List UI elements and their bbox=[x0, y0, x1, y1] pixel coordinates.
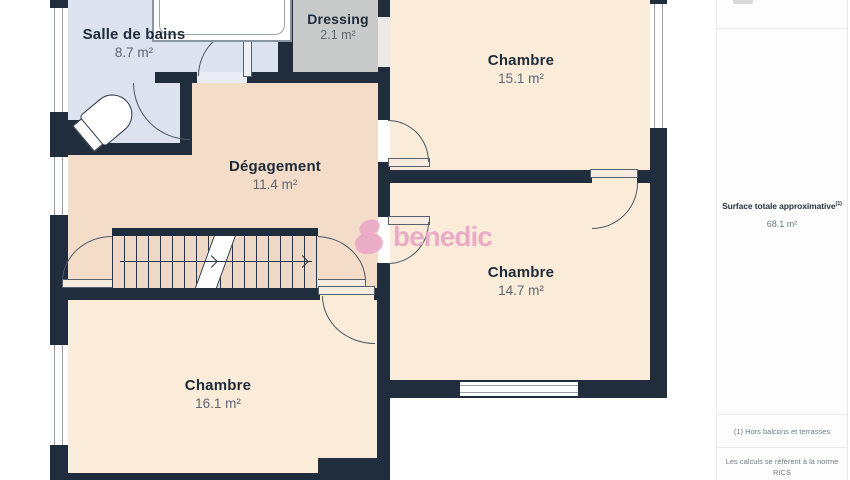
surface-total-value: 68.1 m² bbox=[717, 219, 847, 229]
sidebar-footnote-2-line1: Les calculs se réfèrent à la norme RICS bbox=[721, 456, 843, 478]
room-label-salle-de-bains: Salle de bains 8.7 m² bbox=[83, 26, 186, 62]
room-label-dressing: Dressing 2.1 m² bbox=[307, 11, 369, 43]
wall-bathroom2-bottom bbox=[50, 143, 192, 155]
wall-bottom-left bbox=[50, 473, 320, 480]
room-name: Chambre bbox=[488, 264, 554, 282]
staircase bbox=[112, 236, 318, 288]
room-name: Salle de bains bbox=[83, 26, 186, 44]
surface-total-block: Surface totale approximative(1) 68.1 m² bbox=[717, 201, 847, 229]
room-name: Chambre bbox=[488, 52, 554, 70]
room-name: Dressing bbox=[307, 11, 369, 27]
window-right-1 bbox=[650, 4, 667, 128]
room-label-chambre-2: Chambre 14.7 m² bbox=[488, 264, 554, 300]
sidebar-footnote-1: (1) Hors balcons et terrasses bbox=[721, 426, 843, 437]
sidebar-divider bbox=[717, 28, 847, 29]
wall-divider-seg-2 bbox=[378, 67, 390, 120]
surface-total-text: Surface totale approximative bbox=[722, 201, 835, 211]
door-leaf-bedroom-3 bbox=[318, 286, 375, 295]
watermark-text: benedic bbox=[393, 222, 492, 252]
room-area: 8.7 m² bbox=[83, 44, 186, 62]
room-area: 16.1 m² bbox=[185, 395, 251, 413]
surface-note-ref: (1) bbox=[835, 201, 841, 207]
floorplan-page: benedic Salle de bains 8.7 m² Dressing 2… bbox=[0, 0, 850, 480]
room-area: 15.1 m² bbox=[488, 70, 554, 88]
room-label-degagement: Dégagement 11.4 m² bbox=[229, 158, 321, 194]
window-bottom-1 bbox=[460, 382, 578, 396]
door-opening-dressing bbox=[378, 17, 390, 67]
room-area: 14.7 m² bbox=[488, 282, 554, 300]
room-label-chambre-1: Chambre 15.1 m² bbox=[488, 52, 554, 88]
wall-divider-seg-3 bbox=[378, 162, 390, 217]
room-name: Dégagement bbox=[229, 158, 321, 176]
door-leaf-bedroom1-bottom bbox=[590, 169, 638, 178]
room-name: Chambre bbox=[185, 377, 251, 395]
wall-divider-seg-1 bbox=[378, 0, 390, 17]
sidebar-top-pill bbox=[733, 0, 753, 4]
sidebar-divider bbox=[717, 414, 847, 415]
sidebar-divider bbox=[717, 447, 847, 448]
room-area: 2.1 m² bbox=[307, 27, 369, 43]
room-area: 11.4 m² bbox=[229, 176, 321, 194]
window-left-2 bbox=[50, 157, 68, 215]
window-left-1 bbox=[50, 8, 68, 112]
info-sidebar: Surface totale approximative(1) 68.1 m² … bbox=[716, 0, 848, 480]
sidebar-footnote-2: Les calculs se réfèrent à la norme RICS … bbox=[721, 456, 843, 480]
wall-bottom-step bbox=[318, 458, 390, 480]
wall-stairs-top bbox=[112, 228, 318, 236]
surface-total-label: Surface totale approximative(1) bbox=[717, 201, 847, 211]
window-left-3 bbox=[50, 345, 68, 445]
room-label-chambre-3: Chambre 16.1 m² bbox=[185, 377, 251, 413]
